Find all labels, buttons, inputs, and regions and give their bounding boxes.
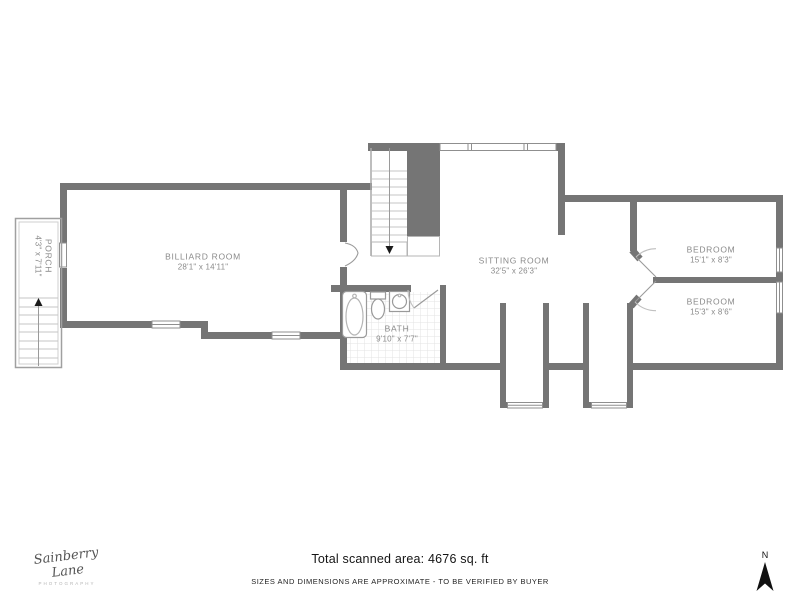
room-dims: 4'3" x 7'11" xyxy=(33,235,43,276)
billiard-window-right xyxy=(272,332,300,339)
room-label-porch: PORCH 4'3" x 7'11" xyxy=(33,235,54,276)
room-label-billiard: BILLIARD ROOM 28'1" x 14'11" xyxy=(165,252,241,273)
logo-signature: Sainberry Lane xyxy=(21,544,114,585)
north-compass: N xyxy=(751,545,779,595)
room-label-bedroom-top: BEDROOM 15'1" x 8'3" xyxy=(687,245,736,266)
bathtub-icon xyxy=(343,292,367,338)
room-name: BEDROOM xyxy=(687,245,736,255)
dormer-window-right xyxy=(592,403,627,409)
sink-icon xyxy=(390,292,410,312)
room-dims: 32'5" x 26'3" xyxy=(479,267,550,277)
bedroom-bottom-window xyxy=(777,282,783,313)
bedroom-top-window xyxy=(777,248,783,272)
photographer-logo: Sainberry Lane PHOTOGRAPHY xyxy=(22,549,112,586)
room-dims: 28'1" x 14'11" xyxy=(165,263,241,273)
floorplan-drawing xyxy=(0,0,800,600)
floorplan-canvas: BILLIARD ROOM 28'1" x 14'11" SITTING ROO… xyxy=(0,0,800,600)
bedroom-bottom-door xyxy=(635,281,656,311)
total-area-text: Total scanned area: 4676 sq. ft xyxy=(0,552,800,566)
room-dims: 9'10" x 7'7" xyxy=(376,335,418,345)
room-dims: 15'1" x 8'3" xyxy=(687,256,736,266)
room-label-bath: BATH 9'10" x 7'7" xyxy=(376,324,418,345)
north-label: N xyxy=(762,550,769,560)
room-label-sitting: SITTING ROOM 32'5" x 26'3" xyxy=(479,256,550,277)
billiard-hall-door xyxy=(345,243,358,266)
room-name: PORCH xyxy=(44,235,54,276)
stairs-up-arrow-icon xyxy=(35,298,43,306)
sitting-room-top-window xyxy=(440,144,556,151)
room-label-bedroom-bottom: BEDROOM 15'3" x 8'6" xyxy=(687,297,736,318)
porch-door-window xyxy=(60,243,67,267)
room-dims: 15'3" x 8'6" xyxy=(687,308,736,318)
room-name: BEDROOM xyxy=(687,297,736,307)
room-name: BATH xyxy=(376,324,418,334)
room-name: BILLIARD ROOM xyxy=(165,252,241,262)
walls xyxy=(60,143,783,408)
disclaimer-text: SIZES AND DIMENSIONS ARE APPROXIMATE - T… xyxy=(0,577,800,586)
room-name: SITTING ROOM xyxy=(479,256,550,266)
billiard-window-left xyxy=(152,321,180,328)
dormer-window-left xyxy=(508,403,543,409)
north-arrow-icon: N xyxy=(751,545,779,595)
toilet-icon xyxy=(371,292,386,319)
